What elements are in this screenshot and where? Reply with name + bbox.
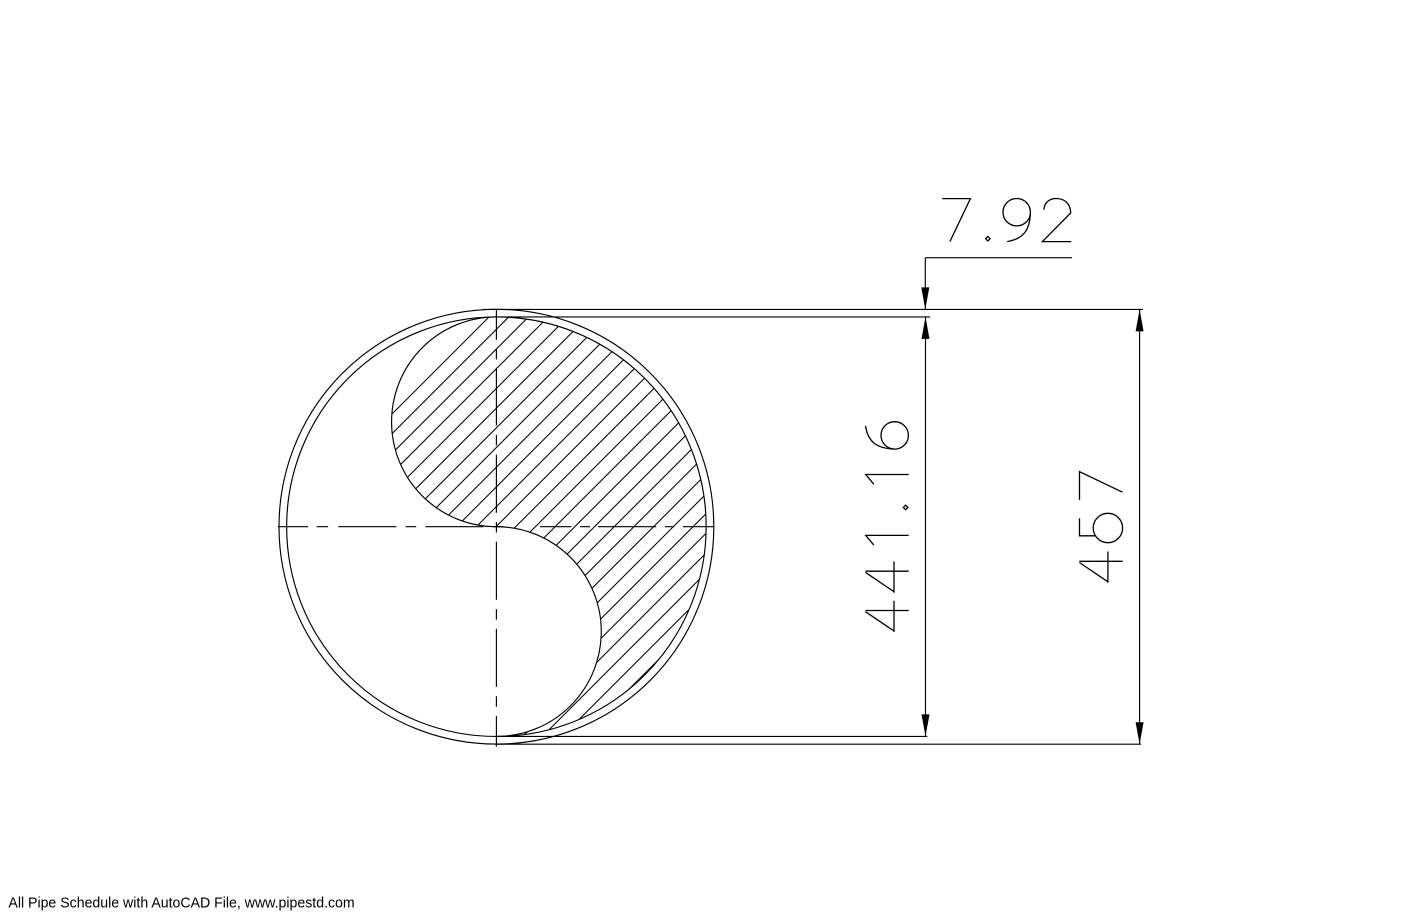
svg-text:All Pipe Schedule with AutoCAD: All Pipe Schedule with AutoCAD File, www… [8, 895, 354, 912]
